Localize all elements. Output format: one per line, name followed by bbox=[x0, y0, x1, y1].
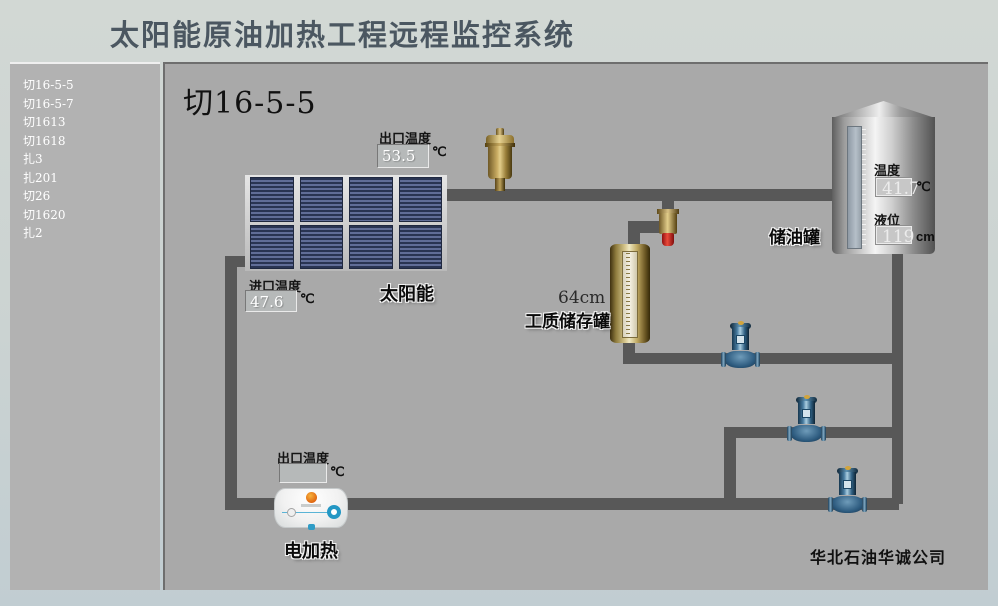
solar-panel-cell bbox=[349, 225, 393, 270]
sidebar-item-zha2[interactable]: 扎2 bbox=[10, 224, 160, 243]
pipe-pump1-line bbox=[623, 353, 903, 364]
electric-heater bbox=[274, 488, 348, 528]
solar-inlet-temp-unit: ℃ bbox=[300, 291, 315, 307]
oil-tank-temp-value[interactable]: 41.7 bbox=[875, 177, 913, 197]
heater-inlet-ring bbox=[327, 505, 341, 519]
sidebar-item-qie26[interactable]: 切26 bbox=[10, 187, 160, 206]
solar-panel-cell bbox=[349, 177, 393, 222]
safety-relief-valve bbox=[657, 209, 679, 247]
solar-panel-cell bbox=[250, 177, 294, 222]
air-vent-outlet bbox=[495, 178, 505, 191]
medium-storage-tank bbox=[610, 244, 650, 343]
oil-storage-tank: 温度 41.7 ℃ 液位 119 cm bbox=[832, 101, 935, 254]
window-title: 太阳能原油加热工程远程监控系统 bbox=[110, 12, 575, 54]
company-name: 华北石油华诚公司 bbox=[810, 544, 946, 568]
oil-tank-level-unit: cm bbox=[916, 229, 935, 244]
pump-flange bbox=[821, 426, 826, 441]
solar-collector bbox=[245, 175, 447, 271]
sidebar: 切16-5-5 切16-5-7 切1613 切1618 扎3 扎201 切26 … bbox=[10, 62, 160, 590]
pump-flange bbox=[828, 497, 833, 512]
safety-valve-red-cap bbox=[662, 233, 674, 246]
pump-nameplate bbox=[843, 480, 852, 489]
hmi-diagram-canvas: 切16-5-5 太阳能 出口温度 53.5 ℃ 进口温度 47.6 ℃ bbox=[163, 62, 988, 590]
medium-tank-sight-glass bbox=[622, 251, 638, 338]
pump-volute bbox=[790, 425, 823, 442]
pump-eyebolt bbox=[738, 321, 744, 325]
sidebar-item-zha201[interactable]: 扎201 bbox=[10, 169, 160, 188]
heater-label: 电加热 bbox=[284, 537, 338, 563]
oil-tank-level-value[interactable]: 119 bbox=[875, 225, 913, 245]
pump-eyebolt bbox=[804, 395, 810, 399]
pipe-right-riser bbox=[892, 252, 903, 504]
oil-tank-label: 储油罐 bbox=[769, 223, 820, 248]
heater-drain-valve bbox=[308, 524, 315, 530]
pump-eyebolt bbox=[845, 466, 851, 470]
pump-flange bbox=[755, 352, 760, 367]
solar-outlet-temp-value[interactable]: 53.5 bbox=[377, 144, 429, 168]
sidebar-item-qie1620[interactable]: 切1620 bbox=[10, 206, 160, 225]
sidebar-item-qie1618[interactable]: 切1618 bbox=[10, 132, 160, 151]
pump-volute bbox=[724, 351, 757, 368]
heater-thermostat-dial bbox=[287, 508, 296, 517]
heater-outlet-temp-value[interactable] bbox=[279, 463, 327, 483]
solar-panel-cell bbox=[250, 225, 294, 270]
air-vent-valve bbox=[485, 128, 515, 192]
pump-flange bbox=[862, 497, 867, 512]
pump-nameplate bbox=[802, 409, 811, 418]
heater-brand-text bbox=[301, 504, 321, 507]
oil-tank-roof bbox=[832, 101, 935, 118]
pump-flange bbox=[787, 426, 792, 441]
solar-panel-cell bbox=[399, 225, 443, 270]
heater-outlet-temp-unit: ℃ bbox=[330, 464, 345, 480]
pump-nameplate bbox=[736, 335, 745, 344]
pipe-pump2-drop bbox=[724, 427, 736, 509]
solar-label: 太阳能 bbox=[380, 280, 434, 306]
medium-tank-level-text: 64cm bbox=[558, 288, 605, 308]
heater-brand-logo bbox=[306, 492, 317, 503]
oil-tank-level-gauge bbox=[847, 126, 862, 249]
air-vent-body bbox=[488, 146, 512, 179]
sidebar-item-qie1613[interactable]: 切1613 bbox=[10, 113, 160, 132]
oil-tank-temp-unit: ℃ bbox=[916, 179, 931, 195]
solar-inlet-temp-value[interactable]: 47.6 bbox=[245, 290, 297, 312]
solar-outlet-temp-unit: ℃ bbox=[432, 144, 447, 160]
sidebar-item-qie16-5-5[interactable]: 切16-5-5 bbox=[10, 76, 160, 95]
circulation-pump-1 bbox=[722, 323, 759, 371]
circulation-pump-3 bbox=[829, 468, 866, 516]
sidebar-item-qie16-5-7[interactable]: 切16-5-7 bbox=[10, 95, 160, 114]
page-title: 切16-5-5 bbox=[183, 78, 317, 122]
solar-panel-cell bbox=[399, 177, 443, 222]
pump-flange bbox=[721, 352, 726, 367]
solar-panel-cell bbox=[300, 177, 344, 222]
pipe-left-riser bbox=[225, 256, 237, 510]
pump-volute bbox=[831, 496, 864, 513]
safety-valve-body bbox=[659, 213, 677, 234]
circulation-pump-2 bbox=[788, 397, 825, 445]
solar-panel-cell bbox=[300, 225, 344, 270]
medium-tank-label: 工质储存罐 bbox=[525, 307, 610, 332]
sidebar-item-zha3[interactable]: 扎3 bbox=[10, 150, 160, 169]
